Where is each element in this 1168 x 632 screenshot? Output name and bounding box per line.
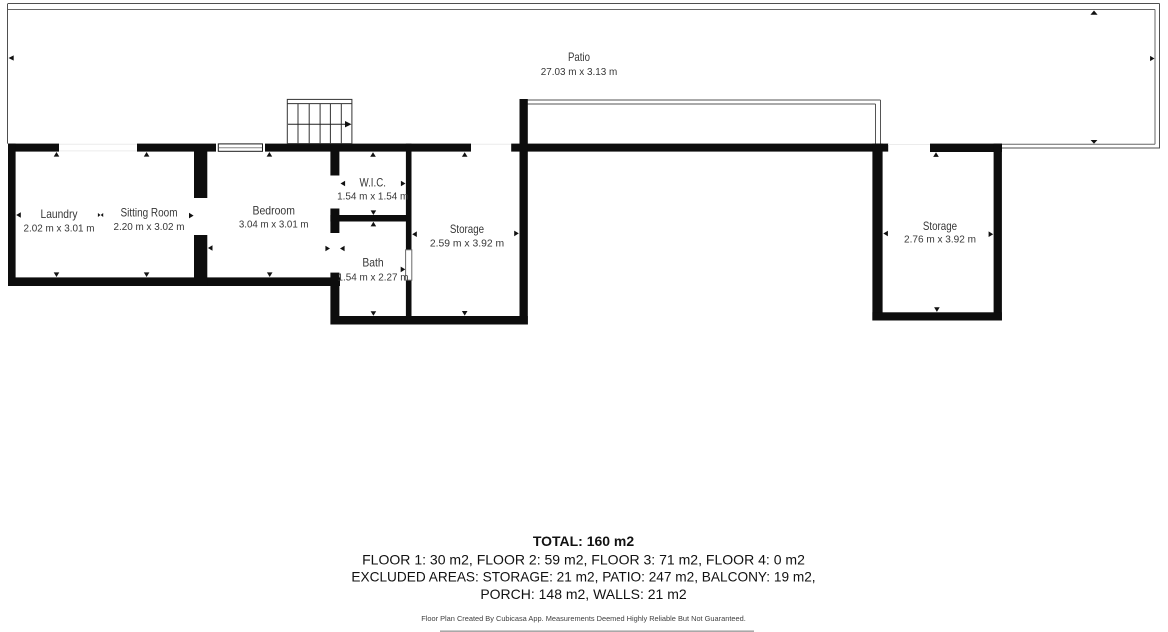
svg-text:Laundry: Laundry <box>41 208 78 221</box>
svg-text:1.54 m x 2.27 m: 1.54 m x 2.27 m <box>338 272 409 283</box>
svg-text:EXCLUDED AREAS: STORAGE: 21 m2: EXCLUDED AREAS: STORAGE: 21 m2, PATIO: 2… <box>351 569 815 585</box>
svg-text:TOTAL: 160 m2: TOTAL: 160 m2 <box>533 533 635 549</box>
svg-text:27.03 m x 3.13 m: 27.03 m x 3.13 m <box>541 67 618 78</box>
svg-text:2.20 m x 3.02 m: 2.20 m x 3.02 m <box>114 222 185 233</box>
svg-text:Patio: Patio <box>568 51 590 64</box>
svg-text:1.54 m x 1.54 m: 1.54 m x 1.54 m <box>337 192 408 203</box>
svg-text:FLOOR 1: 30 m2, FLOOR 2: 59 m2: FLOOR 1: 30 m2, FLOOR 2: 59 m2, FLOOR 3:… <box>362 551 805 567</box>
svg-text:3.04 m x 3.01 m: 3.04 m x 3.01 m <box>239 220 309 231</box>
svg-text:2.02 m x 3.01 m: 2.02 m x 3.01 m <box>24 224 95 235</box>
svg-text:Bedroom: Bedroom <box>253 204 295 217</box>
svg-text:Bath: Bath <box>362 256 383 269</box>
svg-text:Storage: Storage <box>923 220 957 233</box>
svg-text:Sitting Room: Sitting Room <box>121 206 178 219</box>
svg-text:PORCH: 148 m2, WALLS: 21 m2: PORCH: 148 m2, WALLS: 21 m2 <box>480 586 687 602</box>
svg-text:2.76 m x 3.92 m: 2.76 m x 3.92 m <box>904 235 976 246</box>
svg-text:Floor Plan Created By Cubicasa: Floor Plan Created By Cubicasa App. Meas… <box>421 614 746 623</box>
svg-text:2.59 m x 3.92 m: 2.59 m x 3.92 m <box>430 238 504 249</box>
svg-text:W.I.C.: W.I.C. <box>360 177 386 190</box>
svg-text:Storage: Storage <box>450 223 484 236</box>
